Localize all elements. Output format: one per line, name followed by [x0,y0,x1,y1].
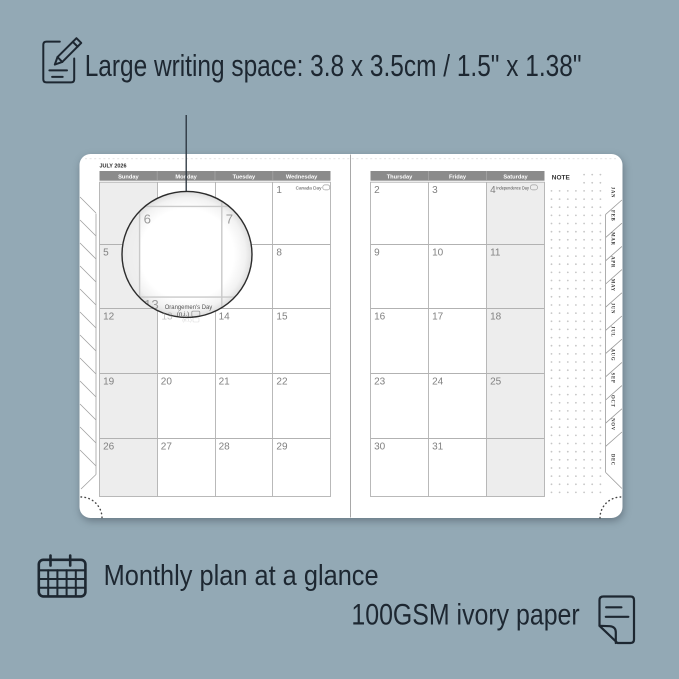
svg-text:11: 11 [490,248,501,259]
svg-text:25: 25 [490,377,502,388]
svg-text:23: 23 [374,377,386,388]
svg-text:SEP: SEP [610,373,615,384]
svg-text:NOTE: NOTE [552,176,570,182]
svg-text:Large writing space: 3.8 x 3.5: Large writing space: 3.8 x 3.5cm / 1.5" … [85,48,582,83]
svg-text:Wednesday: Wednesday [286,174,318,180]
svg-text:3: 3 [432,185,438,196]
svg-text:30: 30 [374,442,386,453]
svg-text:FEB: FEB [610,210,615,222]
svg-text:JUL: JUL [610,326,615,337]
svg-text:29: 29 [276,442,288,453]
svg-text:17: 17 [432,312,444,323]
svg-text:Friday: Friday [449,174,467,180]
svg-text:20: 20 [161,377,173,388]
svg-text:19: 19 [103,377,115,388]
svg-text:5: 5 [103,248,109,259]
svg-text:27: 27 [161,442,173,453]
svg-text:JAN: JAN [610,187,615,198]
svg-text:MAR: MAR [610,232,615,246]
svg-text:16: 16 [374,312,386,323]
svg-text:24: 24 [432,377,444,388]
svg-text:7: 7 [226,211,233,226]
svg-text:28: 28 [219,442,231,453]
svg-text:14: 14 [219,312,231,323]
svg-text:26: 26 [103,442,115,453]
svg-text:AUG: AUG [610,349,615,362]
svg-text:(n.i.): (n.i.) [182,318,192,323]
svg-text:1: 1 [276,185,282,196]
svg-text:100GSM ivory paper: 100GSM ivory paper [351,598,579,631]
svg-text:22: 22 [276,377,288,388]
svg-text:13: 13 [162,312,174,323]
svg-text:OCT: OCT [610,395,615,408]
svg-text:6: 6 [144,211,151,226]
svg-text:10: 10 [432,248,444,259]
svg-text:JUN: JUN [610,303,615,314]
svg-text:12: 12 [103,312,115,323]
svg-text:Independence Day: Independence Day [496,185,529,190]
svg-text:NOV: NOV [610,418,615,431]
svg-text:Tuesday: Tuesday [233,174,256,180]
svg-text:18: 18 [490,312,502,323]
svg-text:DEC: DEC [610,454,615,466]
svg-text:Sunday: Sunday [118,174,139,180]
svg-text:APR: APR [610,256,615,268]
svg-text:8: 8 [276,248,282,259]
svg-text:Saturday: Saturday [503,174,528,180]
svg-text:JULY 2026: JULY 2026 [100,164,128,170]
svg-text:Monthly plan at a glance: Monthly plan at a glance [104,560,379,592]
svg-text:Canada Day: Canada Day [296,185,323,190]
svg-text:MAY: MAY [610,279,615,292]
svg-text:31: 31 [432,442,444,453]
svg-text:15: 15 [276,312,288,323]
svg-text:9: 9 [374,248,380,259]
svg-text:21: 21 [219,377,231,388]
svg-text:4: 4 [490,185,496,196]
svg-text:2: 2 [374,185,380,196]
svg-text:Thursday: Thursday [387,174,413,180]
